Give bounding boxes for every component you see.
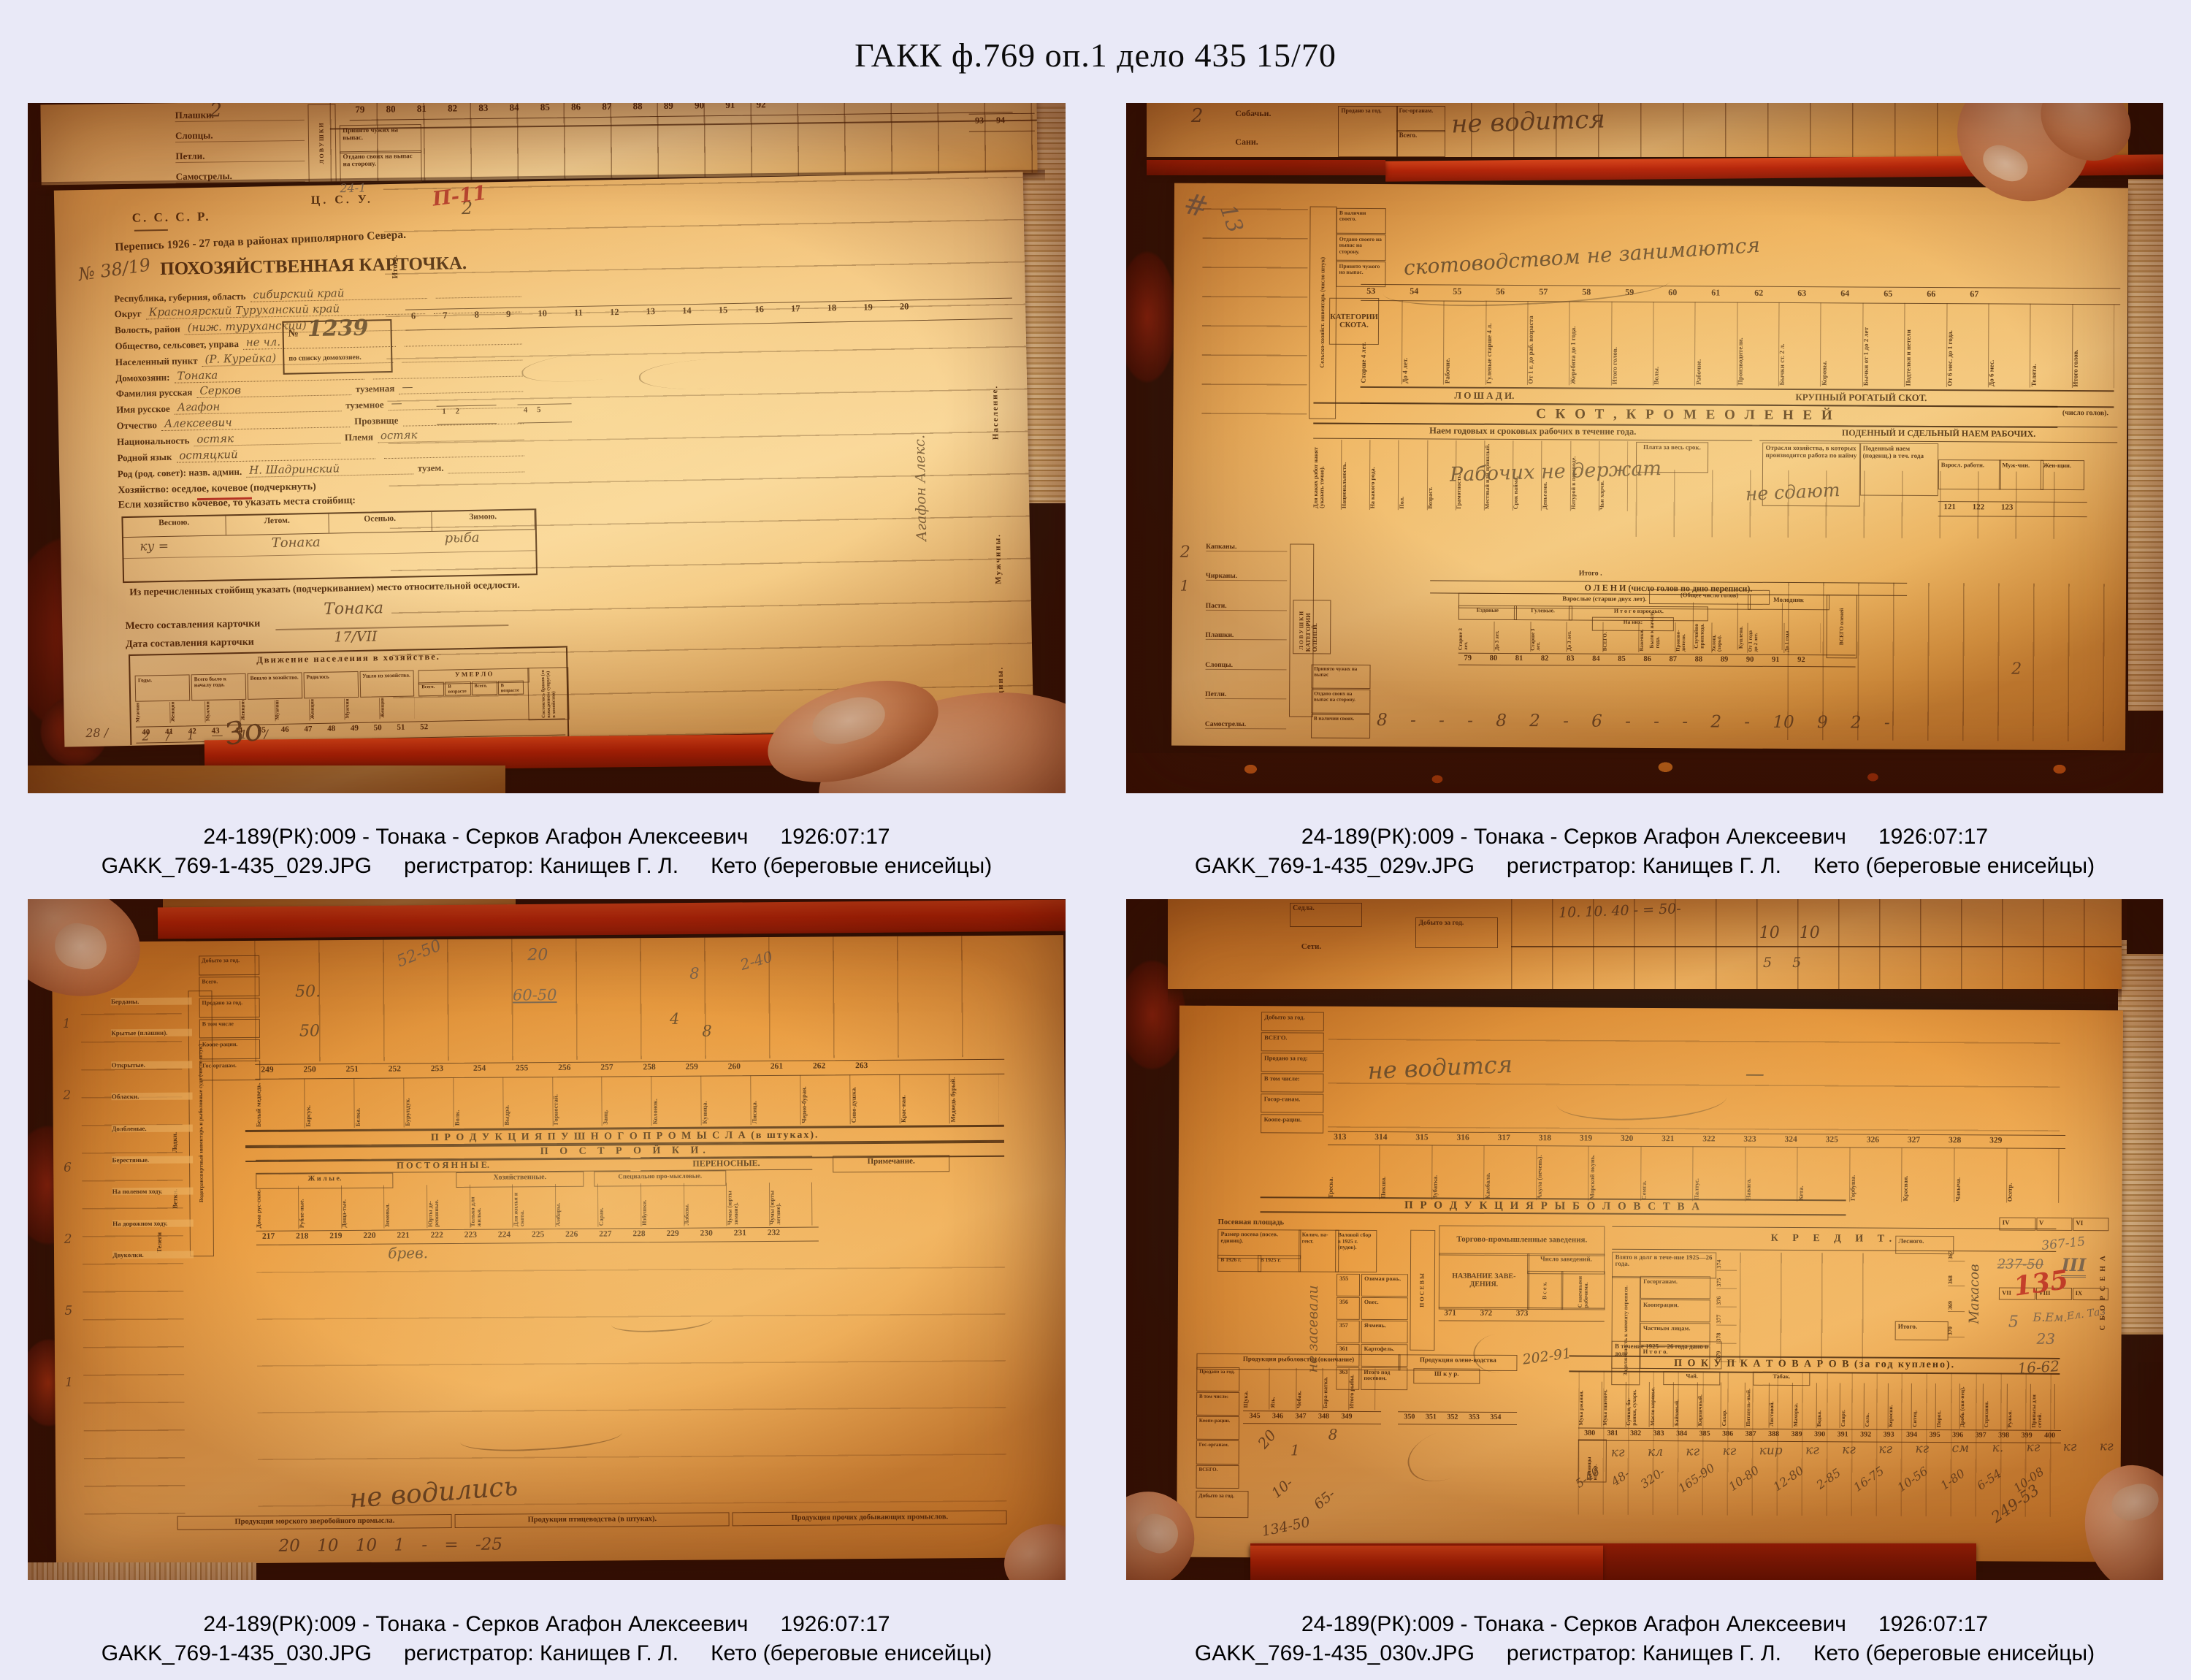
caption-line-file: GAKK_769-1-435_029.JPGрегистратор: Канищ… [28,852,1066,881]
goods-grid [1578,1371,2056,1517]
lower-grid [256,1240,1007,1507]
camps-line: Если хозяйство кочевое, то указать места… [118,495,356,511]
hay-number: 369 [1948,1287,1965,1313]
trap-row-label: Петли. [1205,692,1286,700]
left-count: 5 [64,1304,90,1318]
trade-header: Торгово-промышленные заведения. [1439,1226,1605,1256]
cccp-underline [134,229,167,232]
livestock-label: Итого голов. [2072,304,2114,389]
fish-label: Треска. [1328,1145,1380,1200]
animal-label: Куница. [701,1075,751,1126]
fish-label: Камбала. [1484,1145,1537,1201]
movement-umerlo-subcell: Всего. [471,681,497,695]
fish-label: Кета. [1798,1147,1851,1202]
bottom-section-bands: Продукция морского зверобойного промысла… [177,1511,1006,1530]
crop-row: 355 Озимая рожь. [1337,1274,1408,1297]
crop-number: 355 [1337,1274,1360,1297]
animal-label: Сиво-душка. [850,1074,900,1125]
strip-trap-row-label: Слопцы. [175,129,305,142]
form-field-value-handwritten: Серков [196,381,351,398]
caption-line-file: GAKK_769-1-435_030v.JPGрегистратор: Кани… [1126,1639,2163,1668]
caption-line-record: 24-189(РК):009 - Тонака - Серков Агафон … [1126,1610,2163,1639]
movement-handwritten-28: 28 / [85,726,108,741]
livestock-label: Коровы. [1821,302,1863,387]
building-label: Чумы (юрты летние). [769,1182,812,1226]
hw-202-91: 202-91 [1521,1345,1572,1368]
fish2-left-cell: Коопе-рации. [1196,1416,1240,1440]
record-date: 1926:07:17 [780,825,890,849]
strip-hw-10-10: 10 10 [1759,924,1820,942]
place-of-filling-label: Место составления карточки [125,618,260,633]
sown-1925-cell: В 1925 г. [1258,1255,1301,1272]
left-count: 2 [64,1232,89,1246]
movement-marriages-cell: Состоялось браков (со вхождением супруг(… [527,667,569,720]
pencil-mark-24-1: 24-1 [340,181,366,196]
cccp-label: С. С. С. Р. [131,209,210,225]
hay-number: 367 [1949,1236,1965,1261]
fish2-label: Бара-натка. [1323,1368,1349,1410]
animal-label: Волк. [454,1077,503,1128]
fish2-left-cell: В том числе: [1196,1391,1240,1416]
hay-total-cell: Итого. [1895,1321,1949,1340]
season-header: Летом. [226,513,329,535]
worker-label: На какого рода. [1370,440,1399,510]
trade-all-cell: В с е х. [1527,1271,1564,1310]
movement-title: Движение населения в хозяйстве. [130,649,566,668]
animal-label: Горностай. [552,1077,602,1127]
archive-page: ГАКК ф.769 оп.1 дело 435 15/70 79 80 81 … [0,0,2191,1680]
card-030v-page: Добыто за год.ВСЕГО.Продано за год:В том… [1177,1006,2123,1562]
trade-numbers: 371 372 373 [1438,1307,1605,1322]
file-name: GAKK_769-1-435_030v.JPG [1195,1641,1475,1665]
bottom-band: Продукция птицеводства (в штуках). [454,1513,729,1528]
roman-cell: V [2036,1218,2072,1231]
fish2-catch-cell: Добыто за год. [1196,1491,1249,1518]
form-field-label: Республика, губерния, область [114,290,245,304]
registrar: регистратор: Канищев Г. Л. [1507,854,1781,878]
oleni-mini-label: Старше 3 лет. [1458,622,1494,652]
oleni-left-cells: Принято чужих на выпасОтдано своих на вы… [1311,665,1371,738]
file-name: GAKK_769-1-435_030.JPG [102,1641,372,1665]
form-field-value-2-handwritten [435,296,521,298]
strip-nets-label: Сети. [1301,942,1321,951]
form-field-label: Отчество [116,419,157,432]
building-label: Доща-тые. [341,1185,384,1229]
mid-grid [1635,470,2074,540]
trap-handwritten-1: 1 [1179,577,1189,595]
animal-label: Медведь бурый. [949,1074,998,1124]
form-field-label-2: Прозвище [354,415,399,427]
movement-sex-mini: Мужчин. [275,699,310,721]
hides-cell: Ш к у р. [1413,1369,1480,1385]
animal-label: Колонок. [651,1076,701,1126]
form-field-value-2-handwritten [404,343,521,346]
left-row-label: Крытые (плашни). [111,1029,192,1037]
catch-cell: Добыто за год. [1261,1012,1323,1031]
form-field-value-2-handwritten [417,328,521,331]
left-handwritten-counts: 126251 [62,1017,90,1390]
fishing-products-band: П Р О Д У К Ц И Я Р Ы Б О Л О В С Т В А [1261,1197,1846,1216]
crop-row: 356 Овес. [1337,1297,1408,1320]
livestock-label: Рабочие. [1444,301,1486,386]
fish2-label: Язь. [1270,1368,1296,1410]
building-label: Амбары. [555,1183,598,1227]
fish2-left-cells: Продано за год.В том числе:Коопе-рации.Г… [1196,1367,1239,1489]
trap-row-label: Пасти. [1206,603,1287,611]
movement-header-cell: Всего было к началу года. [191,673,246,700]
card-numbers-4-5: 4 5 [517,403,572,423]
skot-units-note: (число голов). [2062,410,2108,418]
form-field-label: Род (род. совет): назв. админ. [117,465,242,479]
strip-cell-sold: Продано за год. [1338,106,1398,156]
oleni-ezdovye-cell: Ездовые [1458,606,1517,620]
fish-labels: Треска.Пикша.Зубатка.Камбала.Акула (пече… [1328,1145,2060,1204]
trap-row-label: Плашки. [1205,633,1286,641]
movement-header-cell: Вошло в хозяйство. [247,672,302,700]
movement-sex-mini: Женщин. [310,698,345,720]
movement-sex-minis: Мужчин.Женщин.Мужчин.Женщин.Мужчин.Женщи… [135,698,415,725]
number-sign: № [288,328,298,340]
form-field-value-2-handwritten: — [388,394,523,411]
form-field-value-handwritten: сибирский край [250,284,427,302]
record-id: 24-189(РК):009 - Тонака - Серков Агафон … [1301,1612,1846,1636]
building-label: Рубле-ные. [299,1185,342,1229]
animal-label: Бурундук. [404,1077,454,1128]
catch-cell: ВСЕГО. [1261,1032,1323,1051]
caption-030: 24-189(РК):009 - Тонака - Серков Агафон … [28,1610,1066,1668]
fish-label: Морской окунь. [1588,1145,1641,1201]
strip-trap-row-label: Петли. [176,149,306,163]
ethnic-group: Кето (береговые енисейцы) [711,854,992,878]
left-row-label: Берестяные. [112,1156,193,1164]
page-stack-edge [2128,103,2163,711]
credit-grid [1739,1252,1891,1363]
form-field-label: Родной язык [117,451,172,463]
fish2-hw-1: 1 [1290,1442,1300,1459]
fish2-hw-134-50: 134-50 [1261,1514,1312,1540]
fish2-left-cell: Продано за год. [1196,1367,1240,1391]
building-label: Зимовья. [384,1185,427,1229]
trap-row-label: Слопцы. [1205,662,1286,671]
worker-label: Национальность. [1342,440,1371,510]
movement-header-cells: Годы.Всего было к началу года.Вошло в хо… [134,670,414,702]
photo-029-back: не водится 2 Собачьи. Сани. Продано за г… [1126,103,2163,793]
fish2-label: Щука. [1244,1367,1270,1410]
livestock-label: Гулевые старше 4 л. [1486,301,1529,386]
trade-hired-cell: С наемными рабочими. [1561,1271,1605,1310]
oleni-left-cell: В наличии своих. [1311,714,1370,738]
fish-label: Осетр. [2007,1148,2060,1203]
file-name: GAKK_769-1-435_029v.JPG [1195,854,1475,878]
catch-cell: Коопе-рации. [1261,1114,1323,1133]
building-label: Дома рус-ские. [256,1185,299,1229]
left-margin-rows: Берданы.Крытые (плашни).Открытые.Обласки… [110,997,193,1259]
trap-handwritten-2: 2 [1180,543,1190,562]
left-row-label: На дорожном ходу. [112,1219,194,1227]
caption-029v: 24-189(РК):009 - Тонака - Серков Агафон … [1126,822,2163,881]
sown-gross-cell: Валовой сбор в 1925 г. (пудов). [1335,1230,1377,1272]
worker-label: Пол. [1399,440,1428,510]
livestock-label: Рабочие. [1695,302,1737,386]
household-card-back: # 13 Сельско-хозяйст. инвентарь (число ш… [1171,183,2128,751]
household-number-value: 1239 [307,315,368,342]
dark-corner-top-right [2127,899,2163,954]
form-field-label: Населенный пункт [115,355,197,368]
card-form-fields: Республика, губерния, область сибирский … [114,283,524,480]
strip-traps-band: Л О В У Ш К И [307,104,336,183]
caption-030v: 24-189(РК):009 - Тонака - Серков Агафон … [1126,1610,2163,1668]
animal-label: Выдра. [502,1077,552,1127]
livestock-label: От 6 мес. до 1 года. [1946,303,1989,388]
bottom-page-edges [28,1562,256,1580]
fish-label: Навага. [1745,1147,1798,1202]
strip-trap-row-label: Плашки. [175,108,305,122]
caption-line-record: 24-189(РК):009 - Тонака - Серков Агафон … [1126,822,2163,852]
hw-bem: Б.Ем. [2033,1310,2067,1324]
movement-umerlo-subcells: Всего.В возрасте до 1 г.Всего.В возрасте… [418,680,524,696]
ethnic-group: Кето (береговые енисейцы) [711,1641,992,1665]
form-field-value-handwritten: Агафон [174,397,341,414]
strip-saddles-cell: Седла. [1290,903,1362,927]
worker-label: Для каких работ нанят (указать точно). [1313,440,1342,510]
trap-row-label: Самострелы. [1205,721,1286,730]
oleni-mini-label: ВСЕГО. [1603,622,1640,653]
number-box-caption: по списку домохозяев. [288,353,362,362]
movement-umerlo-subcell: Всего. [418,681,444,696]
form-field-value-handwritten: Алексеевич [161,413,350,431]
livestock-label: Телята. [2030,304,2073,389]
underlying-page-sliver [28,765,505,793]
record-date: 1926:07:17 [1878,1612,1988,1636]
movement-header-cell: Ушло из хозяйства. [359,670,415,698]
form-field-value-2-handwritten: остяк [377,426,524,443]
season-value-spring: ку = [139,538,169,554]
right-cell-label: Случайно приплода. [1694,603,1738,651]
form-field-value-handwritten: Н. Шадринский [246,460,413,477]
fish2-hw-10: 10- [1269,1475,1296,1501]
livestock-label: До 6 мес. [1989,303,2031,388]
season-value-summer: Тонака [271,535,320,551]
inventory-table-grid [1201,206,1307,415]
hay-number: 370 [1948,1313,1965,1338]
crop-row: 357 Ячмень. [1337,1321,1408,1343]
catch-cell: В том числе: [1261,1073,1323,1092]
hay-numbers: 367368369370 [1948,1236,1965,1338]
animal-label: Крас-ная. [900,1074,949,1124]
hw-23: 23 [2036,1330,2055,1348]
credit-number: 375 [1716,1270,1737,1288]
form-field-label: Волость, район [115,324,180,337]
credit-borrowed-cell: Взято в долг в тече-ние 1925—26 года. [1612,1251,1716,1278]
left-count: 2 [63,1088,88,1103]
file-name: GAKK_769-1-435_029.JPG [102,854,372,878]
fish2-label: Чебак. [1296,1368,1323,1410]
floral-cloth-bottom [1126,753,2163,793]
hay-vertical-band: С Б О Р С Е Н А [2099,1209,2108,1330]
form-field-label-2: туземная [355,383,394,395]
livestock-rotated-labels: Старше 4 лет.До 4 лет.Рабочие.Гулевые ст… [1361,300,2115,389]
season-value-winter: рыба [444,530,479,546]
form-field-label: Имя русское [116,403,170,416]
building-label: Юрты де-ревянные. [427,1185,470,1229]
strip-row-dogs: Собачьи. [1235,108,1271,119]
season-header: Зимою. [432,510,535,531]
strip-cell-total: Всего. [1396,130,1445,157]
movement-umerlo-subcell: В возрасте до 1 г. [497,680,523,695]
movement-sex-mini: Мужчин. [345,698,380,719]
fish-label: Горбуша. [1850,1147,1903,1202]
animal-label: Барсук. [305,1078,354,1129]
book-cover-red-edge-dark [1147,160,1385,175]
harvest-cell: Добыто за год. [199,955,259,975]
photo-030-front: 52-50 20 60-50 8 2-40 50. 50 4 8 Добыто … [28,899,1066,1580]
page-title: ГАКК ф.769 оп.1 дело 435 15/70 [0,36,2191,75]
credit-band: К Р Е Д И Т. [1613,1226,2056,1252]
bottom-band: Продукция прочих добывающих промыслов. [732,1511,1006,1526]
settled-value: Тонака [324,599,383,619]
oleni-mini-label: До 3 лет. [1494,622,1531,652]
credit-numbers-column: 374375376377378379 [1716,1252,1737,1362]
ethnic-group: Кето (береговые енисейцы) [1813,1641,2095,1665]
form-field-label-2: туземное [345,399,384,411]
animal-label: Черно-бурая. [800,1074,850,1125]
catch-cell: Госор-ганам. [1261,1093,1323,1112]
sown-area-head: Посевная площадь [1218,1218,1284,1226]
photo-030-back: Сети. Седла. Добыто за год. 10. 10. 40 -… [1126,899,2163,1580]
right-cells: Было к началу года.Случайно приплода.Куп… [1649,602,1783,650]
roman-cell: IV [2000,1217,2035,1230]
household-card-front: 6 7 8 9 10 11 12 13 14 15 16 17 18 19 20… [53,172,1033,747]
fish2-left-cell: Гос-органам. [1196,1440,1240,1465]
strip-rule [1511,946,2122,947]
ownership-header-cell: В наличии своего. [1337,208,1386,234]
fish-label: Зубатка. [1432,1145,1485,1200]
crop-name: Озимая рожь. [1361,1274,1408,1297]
roman-row-1: IVVVI [2000,1217,2109,1231]
season-header: Весною. [123,516,226,537]
livestock-label: Бычки от 1 до 2 лет [1863,303,1905,388]
season-header: Осенью. [329,512,432,533]
livestock-label: Итого голов. [1612,302,1654,386]
fur-grid-top [254,936,1003,1062]
handwriting-squiggle [1401,1419,1491,1490]
seasons-table: Весною.Летом.Осенью.Зимою. ку = Тонака р… [121,508,538,583]
credit-row-label: Госорганам. [1640,1276,1710,1299]
fish2-labels: Щука.Язь.Чебак.Бара-натка.Итого рыбы. [1244,1367,1376,1410]
fish2-label: Итого рыбы. [1349,1368,1375,1410]
caption-line-file: GAKK_769-1-435_030.JPGрегистратор: Канищ… [28,1639,1066,1668]
strip-row-sledges: Сани. [1235,137,1258,148]
form-field-value-handwritten: остяк [194,429,340,446]
oleni-mini-label: До 3 лет. [1567,622,1603,652]
record-id: 24-189(РК):009 - Тонака - Серков Агафон … [203,1612,748,1636]
credit-number: 378 [1716,1326,1737,1344]
crop-number: 357 [1337,1321,1360,1343]
form-field-label: Фамилия русская [115,386,192,400]
livestock-label: Бычки ст. 2 л. [1779,302,1821,387]
hw-dash: — [1745,1064,1764,1085]
oleni-gulevye-cell: Гулевые. [1513,606,1572,620]
right-cell-label: Куплено. [1738,603,1783,651]
photo-029-front: 79 80 81 82 83 84 85 86 87 88 89 90 91 9… [28,103,1066,793]
left-row-label: Долбленые. [112,1124,193,1132]
record-date: 1926:07:17 [1878,825,1988,849]
livestock-label: Волы. [1653,302,1696,386]
trade-name-cell: НАЗВАНИЕ ЗАВЕ-ДЕНИЯ. [1438,1253,1529,1310]
trap-row-label: Капканы. [1206,543,1287,552]
oleni-categories-cell: КАТЕГОРИИ ОЛЕНЕЙ. [1292,600,1331,654]
fish-label: Красная. [1903,1148,1955,1203]
livestock-label: Старше 4 лет. [1361,300,1403,385]
left-count: 1 [62,1017,88,1031]
building-label: Только для жилья. [470,1184,513,1228]
fish2-numbers-2: 350 351 352 353 354 [1398,1411,1517,1425]
left-row-label: Берданы. [110,997,191,1005]
building-label: Чумы (юрты зимние). [727,1183,770,1226]
right-bottom-grid [1787,583,2112,742]
hw-bottom-row: 20 10 10 1 - = -25 [278,1535,502,1556]
building-label: Лабазы. [684,1183,727,1226]
fish2-hw-20: 20 [1254,1427,1280,1452]
hw-5: 5 [2008,1313,2019,1332]
record-date: 1926:07:17 [780,1612,890,1636]
book-cover-red-bottom-bright [1250,1546,1603,1580]
hay-forest-cell: Лесного. [1895,1235,1954,1254]
caption-line-file: GAKK_769-1-435_029v.JPGрегистратор: Кани… [1126,852,2163,881]
movement-header-cell: Родилось [303,671,359,698]
census-line: Перепись 1926 - 27 года в районах припол… [115,228,406,253]
record-id: 24-189(РК):009 - Тонака - Серков Агафон … [203,825,748,849]
sown-kol-cell: Колич. на-гект. [1299,1230,1339,1272]
hay-number: 368 [1948,1261,1965,1287]
left-count: 6 [63,1160,88,1175]
livestock-label: От 1 г. до раб. возраста [1528,301,1570,386]
animal-label: Белый медведь. [255,1079,305,1129]
form-field-label-2: Племя [344,431,372,443]
hired-workers-header: Наем годовых и сроковых рабочих в течени… [1313,423,1752,441]
left-row-label: Двуколки. [112,1251,194,1259]
sown-vertical-band: П О С Е В Ы [1410,1231,1435,1351]
fish2-left-cell: ВСЕГО. [1196,1465,1239,1489]
note-column-header: Примечание. [832,1155,949,1172]
hay-handwriting: Макасов [1967,1241,1983,1324]
left-row-label: Открытые. [111,1061,192,1069]
movement-header-cell: Годы. [134,674,190,702]
livestock-label: Жеребята до 1 года. [1569,301,1612,386]
form-field-value-2-handwritten: — [399,378,523,394]
left-row-label: Обласки. [111,1093,192,1101]
movement-sex-mini: Женщин. [380,698,415,719]
itogo-top-right: Итого . [1579,570,1602,578]
page-stack-edge [2118,940,2163,1335]
caption-line-record: 24-189(РК):009 - Тонака - Серков Агафон … [28,1610,1066,1639]
right-cell-label: Было к началу года. [1649,602,1694,650]
oleni-mini-label: Старше 3 лет. [1531,622,1567,652]
animal-label: Лисица. [751,1075,800,1126]
traps-rows: Капканы.Чирканы.Пасти.Плашки.Слопцы.Петл… [1205,543,1287,730]
registrar: регистратор: Канищев Г. Л. [1507,1641,1781,1665]
fish2-hw-65: 65- [1311,1486,1339,1513]
strip-handwriting: не водится [1450,104,1605,139]
ethnic-group: Кето (береговые енисейцы) [1813,854,2095,878]
workers-handwriting-1: Рабочих не держат [1449,458,1662,487]
fish-label: Семга. [1641,1146,1694,1202]
fur-animal-labels: Белый медведь.Барсук.Белка.Бурундук.Волк… [255,1074,999,1129]
strip-cell-gosorganam: Гос-органам. [1396,106,1445,131]
household-type-line: Хозяйство: оседлое, кочевое (подчеркнуть… [118,481,316,497]
catch-cell: Продано за год: [1261,1053,1323,1072]
livestock-label: До 4 лет. [1402,300,1445,385]
